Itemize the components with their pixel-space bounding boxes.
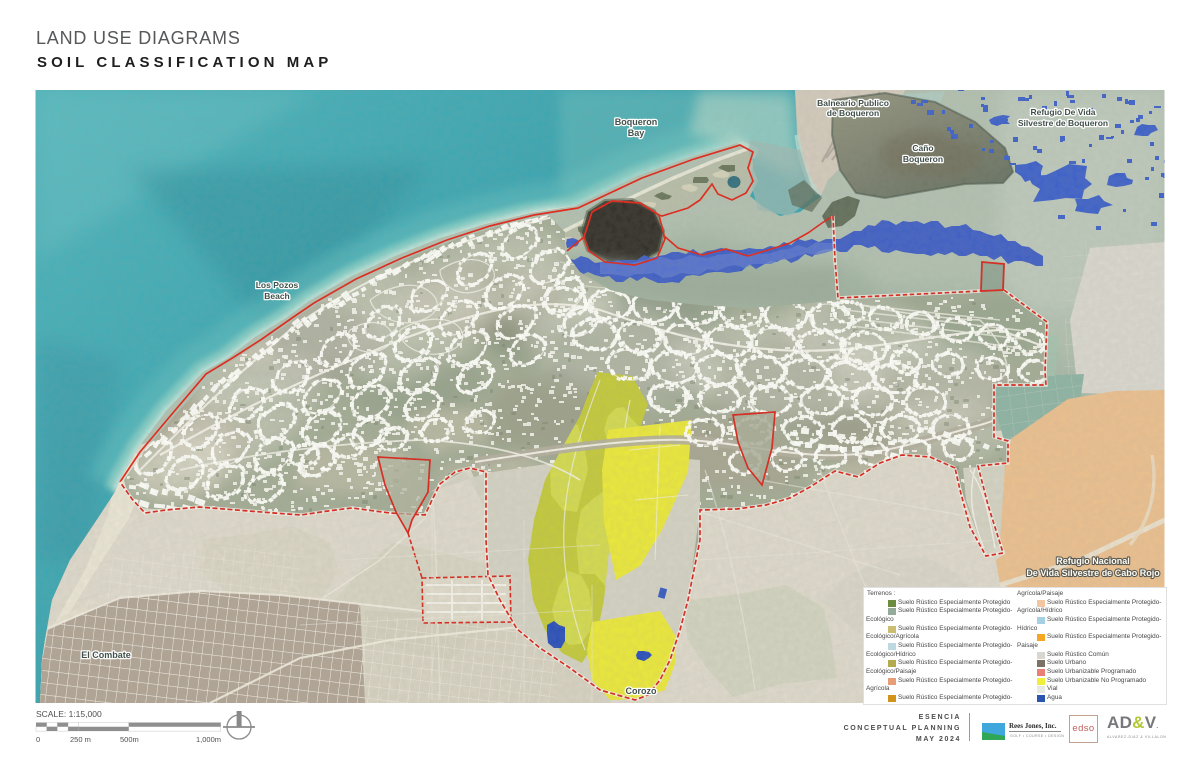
svg-text:500m: 500m [120,735,139,744]
svg-text:Bay: Bay [628,128,645,138]
svg-text:Caño: Caño [912,143,933,153]
svg-text:Refugio De Vida: Refugio De Vida [1030,107,1095,117]
svg-text:Los Pozos: Los Pozos [256,280,299,290]
svg-text:Balneario Publico: Balneario Publico [817,98,889,108]
svg-text:Beach: Beach [264,291,290,301]
svg-text:Silvestre de Boqueron: Silvestre de Boqueron [1018,118,1108,128]
svg-text:De Vida Silvestre de Cabo Rojo: De Vida Silvestre de Cabo Rojo [1026,568,1160,578]
svg-text:0: 0 [36,735,40,744]
svg-text:Refugio Nacional: Refugio Nacional [1056,556,1130,566]
svg-text:El Combate: El Combate [81,650,131,660]
svg-text:250 m: 250 m [70,735,91,744]
svg-text:Boqueron: Boqueron [903,154,943,164]
svg-text:1,000m: 1,000m [196,735,221,744]
svg-text:SCALE: 1:15,000: SCALE: 1:15,000 [36,709,102,719]
svg-text:de Boqueron: de Boqueron [827,108,879,118]
svg-text:Boqueron: Boqueron [615,117,658,127]
svg-text:Corozo: Corozo [626,686,657,696]
